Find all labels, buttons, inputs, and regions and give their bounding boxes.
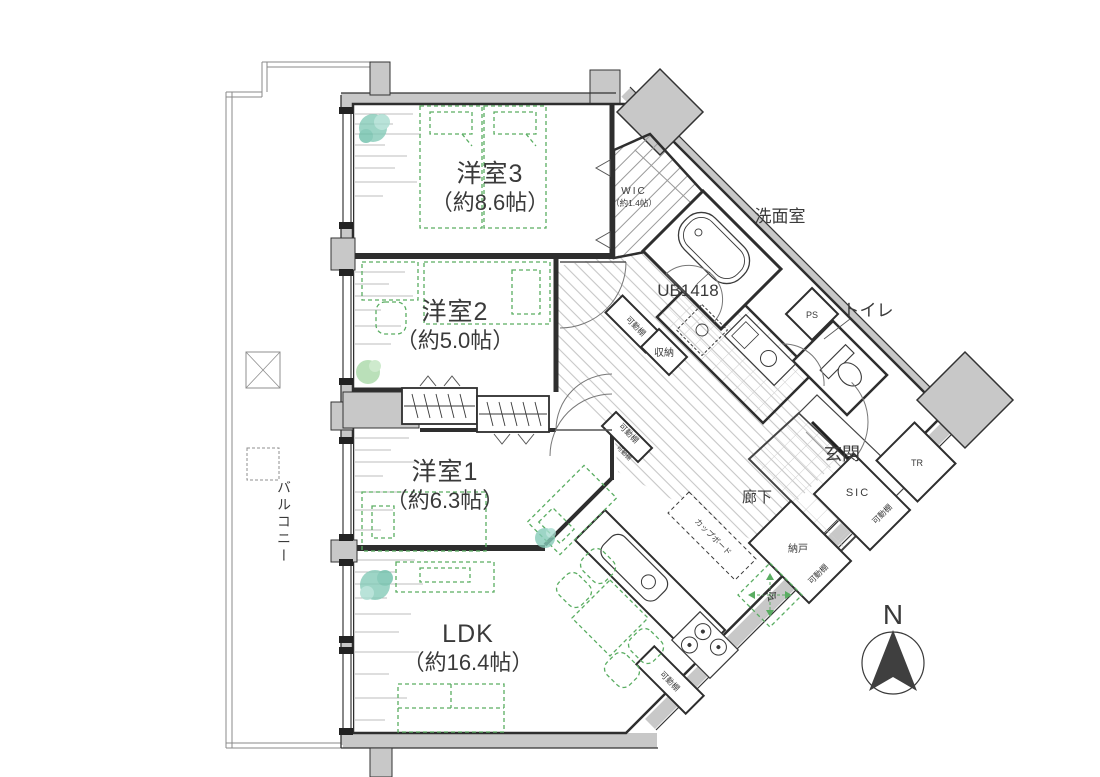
wall-stub-bottom <box>370 748 392 777</box>
ps-label: PS <box>806 310 818 320</box>
bedroom1-size: （約6.3帖） <box>386 488 505 513</box>
tr-label: TR <box>911 458 923 468</box>
floor-plan-drawing: バルコニー <box>0 0 1100 777</box>
toilet-label: トイレ <box>843 301 894 320</box>
bedroom2-size: （約5.0帖） <box>396 328 515 353</box>
window-ldk-lower <box>339 647 353 735</box>
bedroom1-label: 洋室1 <box>412 458 479 486</box>
balcony-hatch-box <box>247 448 279 480</box>
storage-label: 収納 <box>654 346 674 359</box>
north-arrow-icon <box>869 630 917 691</box>
sic-label: SIC <box>846 487 870 499</box>
balcony-drain-box <box>246 352 280 388</box>
genkan-label: 玄関 <box>824 444 860 464</box>
bedroom2-label: 洋室2 <box>422 298 489 326</box>
wall-stub-top <box>370 62 390 95</box>
balcony-label: バルコニー <box>276 480 292 565</box>
window-ldk-upper <box>339 559 353 643</box>
corridor-label2: 廊下 <box>742 489 772 506</box>
window-bedroom3 <box>339 107 353 229</box>
bedroom3-label: 洋室3 <box>457 160 524 188</box>
compass: N <box>862 599 924 694</box>
north-label: N <box>883 599 903 630</box>
bath-label: UB1418 <box>657 281 718 300</box>
window-bedroom2 <box>339 269 353 385</box>
bedroom3-size: （約8.6帖） <box>431 190 550 215</box>
ldk-label: LDK <box>442 620 494 648</box>
wic-label: WIC <box>621 186 646 197</box>
washroom-label: 洗面室 <box>755 207 806 226</box>
ldk-size: （約16.4帖） <box>403 650 534 675</box>
nando-label: 納戸 <box>788 542 808 555</box>
floor-plan: バルコニー <box>0 0 1100 777</box>
window-bedroom1 <box>339 437 353 541</box>
wic-size: （約1.4帖） <box>611 198 657 208</box>
